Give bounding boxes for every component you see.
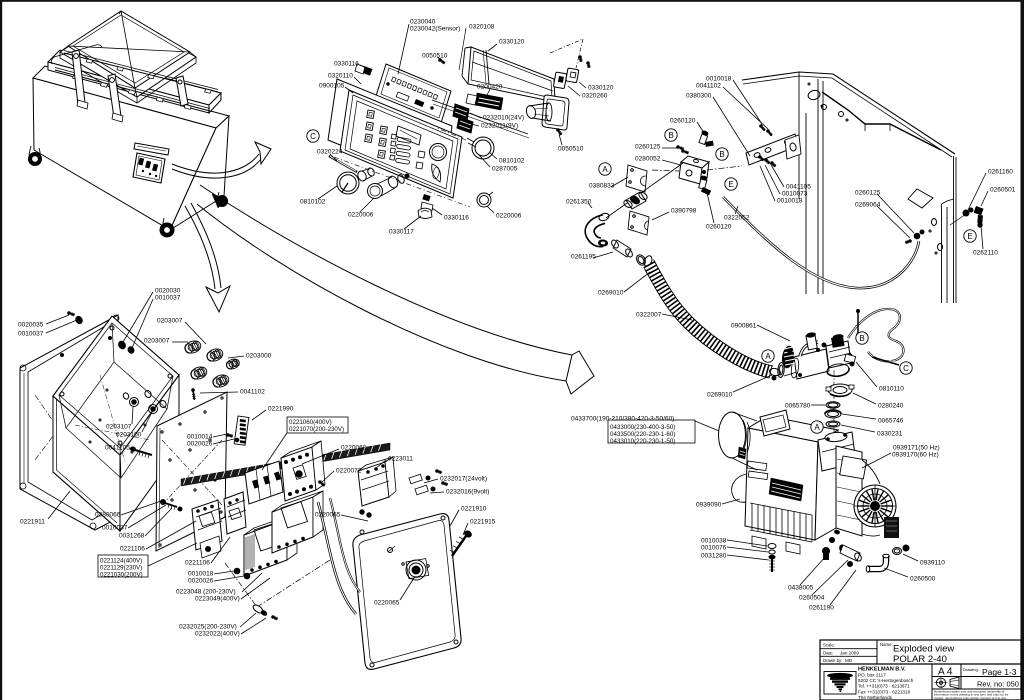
svg-text:Exploded view: Exploded view xyxy=(893,644,954,655)
svg-text:0433500(220-230-1-60): 0433500(220-230-1-60) xyxy=(610,431,675,438)
svg-text:C: C xyxy=(903,364,909,373)
svg-text:0320260: 0320260 xyxy=(582,92,608,99)
svg-text:0221030(200V): 0221030(200V) xyxy=(100,572,143,579)
svg-text:5202 CC 's-Hertogenbosch: 5202 CC 's-Hertogenbosch xyxy=(858,678,914,683)
svg-text:0041102: 0041102 xyxy=(696,82,721,89)
svg-text:POLAR 2-40: POLAR 2-40 xyxy=(893,654,947,665)
svg-text:0221990: 0221990 xyxy=(268,405,294,412)
svg-text:0433700(190-210/380-420-3-50/6: 0433700(190-210/380-420-3-50/60) xyxy=(571,415,674,422)
svg-text:0322052: 0322052 xyxy=(724,214,750,221)
svg-text:0280240: 0280240 xyxy=(878,402,904,409)
svg-text:0261160: 0261160 xyxy=(988,168,1013,175)
svg-text:0939171(50 Hz): 0939171(50 Hz) xyxy=(893,444,940,451)
svg-text:A: A xyxy=(602,165,608,174)
svg-text:Drawing:: Drawing: xyxy=(963,667,979,672)
svg-text:0221911: 0221911 xyxy=(20,518,45,525)
svg-text:0010037: 0010037 xyxy=(155,294,181,301)
svg-text:0010037: 0010037 xyxy=(102,524,128,531)
svg-text:0322007: 0322007 xyxy=(636,311,662,318)
svg-text:0232016(9volt): 0232016(9volt) xyxy=(446,488,489,495)
svg-text:0330120: 0330120 xyxy=(499,38,525,45)
svg-text:0020026: 0020026 xyxy=(187,440,213,447)
svg-text:copied, used without prior wri: copied, used without prior written conse… xyxy=(934,696,1007,700)
svg-text:0221129(230V): 0221129(230V) xyxy=(100,565,142,572)
svg-text:0221124(400V): 0221124(400V) xyxy=(100,558,142,565)
svg-text:0380300: 0380300 xyxy=(686,92,712,99)
svg-text:0260500: 0260500 xyxy=(910,575,936,582)
svg-text:0232022(400V): 0232022(400V) xyxy=(195,630,240,637)
svg-text:0269010: 0269010 xyxy=(598,289,624,296)
svg-text:0810102: 0810102 xyxy=(499,157,525,164)
svg-text:0221106: 0221106 xyxy=(120,545,145,552)
svg-text:0330116: 0330116 xyxy=(444,214,469,221)
svg-text:0050510: 0050510 xyxy=(558,145,584,152)
svg-text:0020030: 0020030 xyxy=(155,287,181,294)
svg-text:Tel. ++31(0)73 - 6213671: Tel. ++31(0)73 - 6213671 xyxy=(858,684,910,689)
svg-text:0203000: 0203000 xyxy=(246,352,272,359)
svg-text:0232025(200-230V): 0232025(200-230V) xyxy=(179,623,237,630)
svg-text:0438005: 0438005 xyxy=(788,584,814,591)
svg-text:B: B xyxy=(719,150,724,159)
svg-text:A: A xyxy=(765,352,771,361)
svg-text:0223011: 0223011 xyxy=(388,455,413,462)
svg-text:E: E xyxy=(967,232,972,241)
svg-text:0220006: 0220006 xyxy=(348,211,374,218)
svg-text:0041105: 0041105 xyxy=(786,183,811,190)
svg-text:0433000(230-400-3-50): 0433000(230-400-3-50) xyxy=(610,424,675,431)
svg-text:Page 1-3: Page 1-3 xyxy=(982,667,1017,677)
svg-text:0203007: 0203007 xyxy=(144,337,170,344)
svg-text:0261195: 0261195 xyxy=(571,253,596,260)
svg-text:0939090: 0939090 xyxy=(696,501,722,508)
svg-text:0223049(400V): 0223049(400V) xyxy=(195,595,240,602)
svg-text:0320110: 0320110 xyxy=(328,72,353,79)
svg-text:Fax ++31(0)73 - 6221318: Fax ++31(0)73 - 6221318 xyxy=(858,689,911,694)
svg-text:0320108: 0320108 xyxy=(469,23,495,30)
svg-text:Name:: Name: xyxy=(880,642,893,647)
svg-text:0330116: 0330116 xyxy=(334,60,359,67)
svg-text:Date:: Date: xyxy=(823,651,833,656)
svg-text:0010076: 0010076 xyxy=(701,544,727,551)
svg-text:Drawn by:: Drawn by: xyxy=(823,658,842,663)
svg-text:0203100: 0203100 xyxy=(116,431,142,438)
svg-text:0221060(400V): 0221060(400V) xyxy=(289,419,332,426)
svg-text:0260120: 0260120 xyxy=(706,223,732,230)
svg-text:0010038: 0010038 xyxy=(701,537,727,544)
svg-text:0261350: 0261350 xyxy=(566,198,592,205)
svg-text:0261190: 0261190 xyxy=(809,604,834,611)
svg-text:0260120: 0260120 xyxy=(670,117,696,124)
svg-text:0230040: 0230040 xyxy=(410,18,436,25)
svg-text:0232011(9V): 0232011(9V) xyxy=(481,122,518,129)
svg-text:0221915: 0221915 xyxy=(470,518,496,525)
svg-text:C: C xyxy=(310,132,316,141)
svg-text:0010037: 0010037 xyxy=(18,330,44,337)
svg-text:0010014: 0010014 xyxy=(187,433,213,440)
svg-text:0050510: 0050510 xyxy=(422,52,448,59)
svg-text:0262110: 0262110 xyxy=(973,249,998,256)
svg-text:0220065: 0220065 xyxy=(374,599,400,606)
svg-text:0031268: 0031268 xyxy=(119,532,145,539)
svg-text:0900861: 0900861 xyxy=(731,322,757,329)
svg-text:0010018: 0010018 xyxy=(706,75,732,82)
svg-text:E: E xyxy=(728,180,733,189)
svg-text:B: B xyxy=(859,334,864,343)
svg-text:0221070(200-230V): 0221070(200-230V) xyxy=(289,426,344,433)
svg-text:0203007: 0203007 xyxy=(157,317,183,324)
svg-text:0010018: 0010018 xyxy=(188,570,214,577)
svg-text:0287005: 0287005 xyxy=(492,165,518,172)
svg-text:0065746: 0065746 xyxy=(878,417,904,424)
svg-text:0220065: 0220065 xyxy=(315,511,341,518)
svg-text:Scale:: Scale: xyxy=(823,643,835,648)
svg-text:0221106: 0221106 xyxy=(185,559,210,566)
svg-text:0203107: 0203107 xyxy=(106,423,132,430)
svg-text:0010073: 0010073 xyxy=(782,190,808,197)
svg-text:0020035: 0020035 xyxy=(18,321,44,328)
svg-text:0433010(220-230-1-50): 0433010(220-230-1-50) xyxy=(610,438,675,445)
svg-text:0221910: 0221910 xyxy=(461,505,487,512)
svg-text:0220072: 0220072 xyxy=(336,467,362,474)
svg-text:0232010(24V): 0232010(24V) xyxy=(483,114,524,121)
svg-text:0330231: 0330231 xyxy=(877,430,903,437)
svg-text:0065780: 0065780 xyxy=(785,402,811,409)
svg-text:0269010: 0269010 xyxy=(707,391,733,398)
svg-text:The Netherlands: The Netherlands xyxy=(858,695,893,700)
svg-text:0260125: 0260125 xyxy=(635,143,661,150)
svg-text:0280052: 0280052 xyxy=(635,155,661,162)
svg-text:0380833: 0380833 xyxy=(589,182,615,189)
svg-text:0269064: 0269064 xyxy=(855,201,881,208)
svg-text:0260504: 0260504 xyxy=(799,594,825,601)
svg-text:Jan 2009: Jan 2009 xyxy=(840,651,859,656)
svg-text:0330120: 0330120 xyxy=(588,84,614,91)
svg-text:0230042(Sensor): 0230042(Sensor) xyxy=(410,25,460,32)
svg-text:0810102: 0810102 xyxy=(300,198,326,205)
svg-text:0260125: 0260125 xyxy=(855,189,881,196)
svg-text:0220060: 0220060 xyxy=(341,444,367,451)
svg-text:0939170(60 Hz): 0939170(60 Hz) xyxy=(892,451,939,458)
svg-text:0232017(24volt): 0232017(24volt) xyxy=(440,475,487,482)
svg-text:0031280: 0031280 xyxy=(701,552,727,559)
svg-text:0041105: 0041105 xyxy=(105,444,130,451)
svg-text:Rev, no: 050: Rev, no: 050 xyxy=(977,680,1019,689)
svg-text:A 4: A 4 xyxy=(938,667,953,678)
svg-text:0380066: 0380066 xyxy=(95,511,121,518)
svg-text:MD: MD xyxy=(845,658,853,663)
svg-text:0223048 (200-230V): 0223048 (200-230V) xyxy=(176,588,236,595)
svg-text:0010018: 0010018 xyxy=(777,197,803,204)
svg-text:0041102: 0041102 xyxy=(240,388,265,395)
svg-text:0330117: 0330117 xyxy=(389,228,414,235)
svg-text:0220006: 0220006 xyxy=(496,212,522,219)
svg-text:0020026: 0020026 xyxy=(188,577,214,584)
svg-text:A: A xyxy=(814,423,820,432)
svg-text:0260501: 0260501 xyxy=(990,186,1016,193)
svg-text:PO. box 2117: PO. box 2117 xyxy=(858,672,886,677)
svg-text:0390798: 0390798 xyxy=(671,207,697,214)
svg-text:0939110: 0939110 xyxy=(920,559,945,566)
svg-text:B: B xyxy=(668,131,673,140)
svg-text:0810110: 0810110 xyxy=(879,385,904,392)
svg-text:0900105: 0900105 xyxy=(319,82,345,89)
